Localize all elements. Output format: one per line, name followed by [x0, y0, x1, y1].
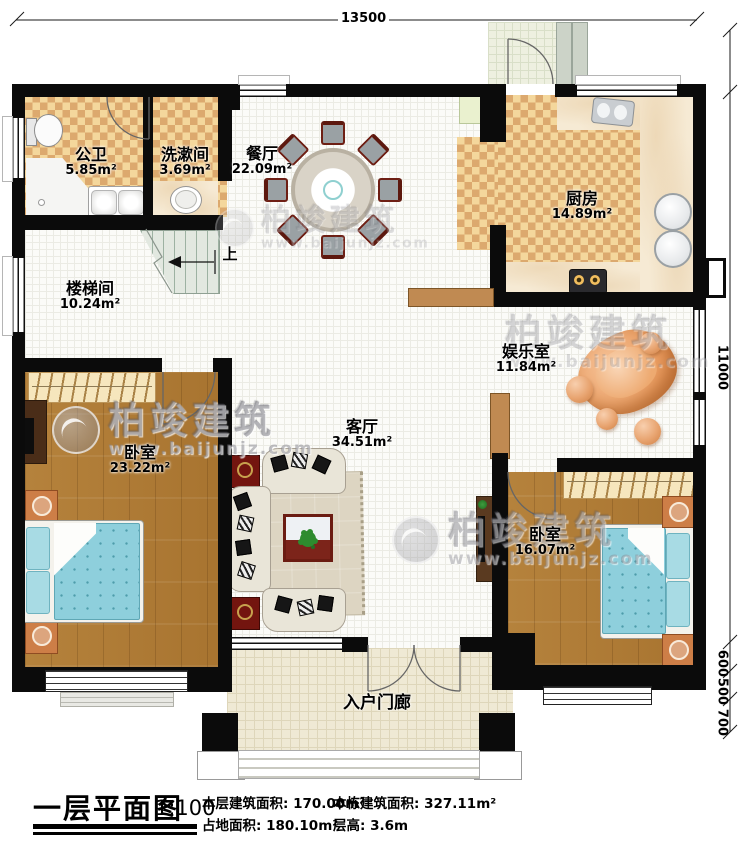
wall	[218, 358, 232, 692]
stove-burner	[574, 275, 584, 285]
room-label-woshi-right: 卧室 16.07m²	[506, 526, 584, 558]
wall	[12, 84, 218, 97]
stove-burner	[590, 275, 600, 285]
wall	[555, 84, 577, 97]
room-label-chufang: 厨房 14.89m²	[544, 190, 620, 222]
bay-window-steps	[60, 692, 174, 707]
wardrobe-rod	[567, 481, 692, 482]
counter-bowl	[654, 230, 692, 268]
room-area: 11.84m²	[488, 361, 564, 376]
lamp-icon	[669, 502, 689, 522]
room-label-canting: 餐厅 22.09m²	[228, 145, 296, 177]
storey-height-value: 3.6m	[370, 818, 408, 834]
side-table	[229, 455, 260, 488]
decor-ring-icon	[237, 604, 253, 620]
cushion	[297, 599, 315, 617]
dim-seg-600: 600	[715, 650, 730, 678]
shower-drain	[38, 199, 45, 206]
cushion	[317, 595, 334, 612]
room-name: 公卫	[60, 146, 122, 164]
exterior-flue-box	[706, 258, 726, 298]
side-table	[229, 597, 260, 630]
nightstand	[25, 620, 58, 654]
wall	[486, 637, 506, 652]
room-label-rumen: 入户门廊	[322, 694, 432, 713]
room-label-keting: 客厅 34.51m²	[328, 418, 396, 450]
dim-seg-700: 700	[715, 709, 730, 737]
total-area-label: 本栋建筑面积:	[333, 796, 419, 812]
dining-chair	[264, 178, 288, 202]
room-name: 卧室	[506, 526, 584, 544]
bay-window	[543, 686, 652, 705]
window-sill	[575, 75, 681, 85]
nightstand	[662, 496, 695, 528]
floor-cushion	[634, 418, 661, 445]
storey-height: 层高: 3.6m	[333, 814, 408, 834]
wall	[286, 84, 480, 97]
window	[232, 637, 342, 650]
plant-icon	[478, 500, 487, 509]
lamp-icon	[32, 626, 52, 646]
window	[577, 84, 677, 97]
counter-bowl	[654, 193, 692, 231]
room-label-loutijian: 楼梯间 10.24m²	[52, 280, 128, 312]
pillow	[26, 527, 50, 570]
room-area: 16.07m²	[506, 544, 584, 559]
vanity-basin	[118, 190, 144, 215]
floor-cushion	[566, 376, 593, 403]
half-wall-counter	[490, 393, 510, 459]
stairs-up-text: 上	[220, 246, 240, 263]
room-label-gongwei: 公卫 5.85m²	[60, 146, 122, 178]
room-area: 5.85m²	[60, 164, 122, 179]
bay-window	[45, 670, 188, 692]
title-underline	[33, 832, 197, 835]
room-area: 3.69m²	[152, 164, 218, 179]
total-area-value: 327.11m²	[424, 796, 496, 812]
dining-table-center	[323, 180, 343, 200]
tv-screen	[24, 418, 34, 454]
room-area: 10.24m²	[52, 298, 128, 313]
room-area: 22.09m²	[228, 163, 296, 178]
room-name: 洗漱间	[152, 146, 218, 164]
window	[240, 84, 286, 97]
room-name: 厨房	[544, 190, 620, 208]
room-label-yuleshi: 娱乐室 11.84m²	[488, 343, 564, 375]
wall-pillar	[460, 637, 486, 652]
bed-sheet-fold	[628, 528, 664, 584]
window-sill	[2, 116, 13, 182]
porch-column	[479, 713, 515, 751]
nightstand	[25, 490, 58, 524]
lamp-icon	[32, 496, 52, 516]
nightstand	[662, 634, 695, 666]
wardrobe-rod	[32, 386, 153, 387]
kitchen-sink-basin	[614, 105, 627, 120]
dim-width-top: 13500	[338, 11, 389, 26]
half-wall-counter	[408, 288, 494, 307]
window-sill	[238, 75, 290, 85]
window	[12, 118, 25, 178]
room-name: 楼梯间	[52, 280, 128, 298]
room-label-xishujian: 洗漱间 3.69m²	[152, 146, 218, 178]
site-area-label: 占地面积:	[202, 818, 261, 834]
room-name: 客厅	[328, 418, 396, 436]
dim-seg-500: 500	[715, 678, 730, 706]
decor-ring-icon	[237, 462, 253, 478]
tv-screen	[478, 516, 485, 562]
title-block: 一层平面图 1:100 本层建筑面积: 170.00m² 占地面积: 180.1…	[0, 783, 750, 848]
site-area-value: 180.10m²	[266, 818, 338, 834]
pillow	[666, 581, 690, 627]
dining-chair	[321, 235, 345, 259]
pillow	[26, 571, 50, 614]
room-area: 34.51m²	[328, 436, 396, 451]
cushion	[237, 515, 255, 533]
window	[693, 400, 706, 445]
porch-steps	[238, 750, 480, 779]
storey-height-label: 层高:	[333, 818, 365, 834]
pillow	[666, 533, 690, 579]
porch-column	[202, 713, 238, 751]
wardrobe	[28, 372, 156, 403]
dining-chair	[378, 178, 402, 202]
washroom-basin-inner	[175, 190, 197, 209]
kitchen-sink-basin	[597, 103, 610, 118]
room-name: 餐厅	[228, 145, 296, 163]
vanity-basin	[91, 190, 117, 215]
site-area: 占地面积: 180.10m²	[202, 814, 338, 834]
stairs-up-label: 上	[220, 246, 240, 263]
wall	[12, 358, 162, 372]
room-name: 卧室	[102, 444, 178, 462]
window	[12, 258, 25, 332]
cushion	[291, 452, 308, 469]
wall	[557, 458, 693, 472]
wall	[500, 292, 695, 307]
lamp-icon	[669, 640, 689, 660]
back-step-bar	[556, 22, 572, 86]
plant-icon	[300, 531, 316, 547]
dim-height-right: 11000	[715, 345, 730, 391]
room-label-woshi-left: 卧室 23.22m²	[102, 444, 178, 476]
floor-cushion	[596, 408, 618, 430]
floor-plan-page: 柏竣建筑 www.baijunjz.com 柏竣建筑 www.baijunjz.…	[0, 0, 750, 848]
dining-chair	[321, 121, 345, 145]
floor-cushion	[640, 332, 662, 354]
room-name: 入户门廊	[322, 694, 432, 713]
window-sill	[2, 256, 13, 336]
total-area: 本栋建筑面积: 327.11m²	[333, 792, 496, 812]
floor-area-label: 本层建筑面积:	[202, 796, 288, 812]
toilet-bowl	[34, 114, 63, 147]
window	[693, 310, 706, 392]
room-area: 14.89m²	[544, 208, 620, 223]
cushion	[235, 539, 252, 556]
porch-column-base	[474, 751, 522, 780]
bed-sheet-fold	[54, 523, 96, 585]
room-name: 娱乐室	[488, 343, 564, 361]
wall-pillar	[480, 84, 506, 142]
wall	[12, 215, 223, 230]
wall-pillar	[342, 637, 368, 652]
room-area: 23.22m²	[102, 462, 178, 477]
